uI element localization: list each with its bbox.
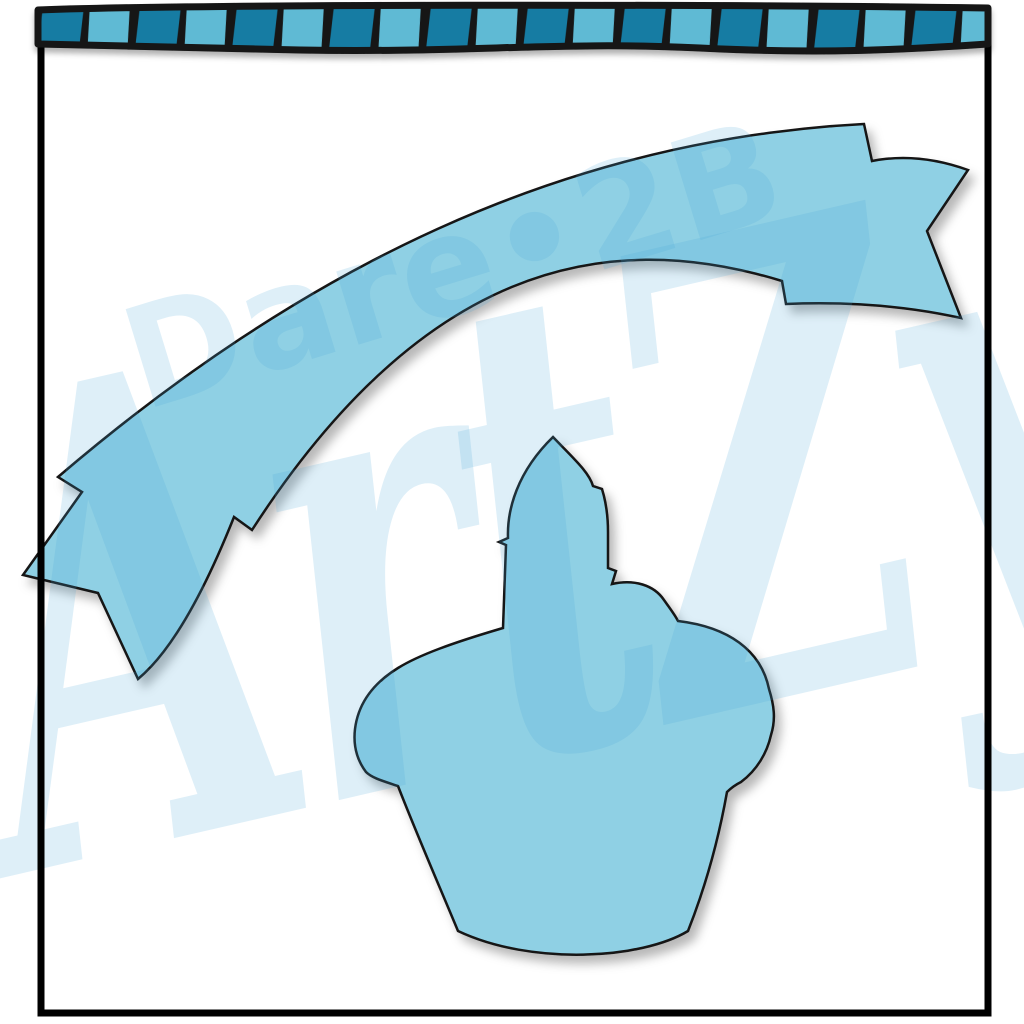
shapes-layer <box>0 0 1024 1024</box>
clipart-canvas: Dare•2B ArtZy <box>0 0 1024 1024</box>
banner-silhouette <box>23 124 968 679</box>
cupcake-silhouette <box>354 437 773 955</box>
